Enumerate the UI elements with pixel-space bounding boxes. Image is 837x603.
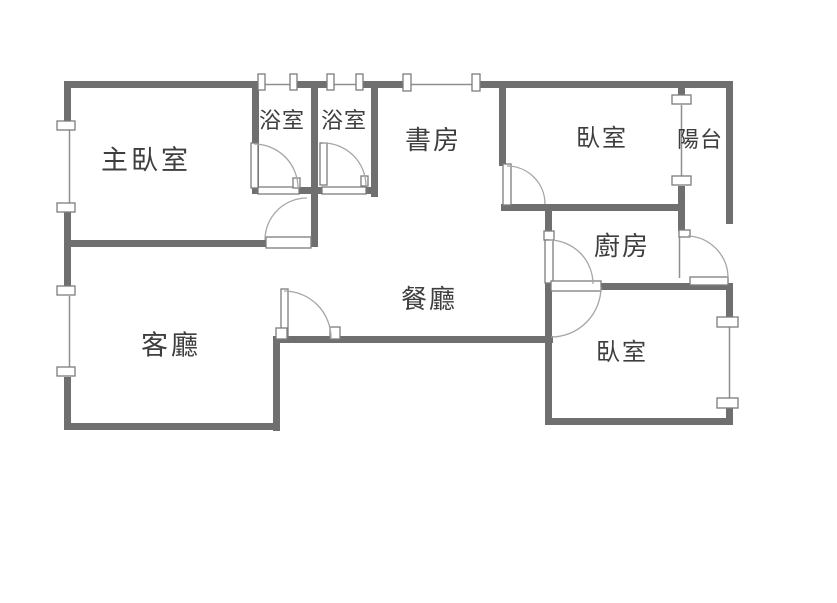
door-jamb: [276, 328, 287, 339]
room-label-bathroom-1: 浴室: [259, 111, 305, 133]
floorplan: 主臥室 浴室 浴室 書房 臥室 陽台 廚房 餐廳 客廳 臥室: [0, 0, 837, 603]
wall-segment: [499, 83, 506, 166]
door-swing-arc: [284, 291, 331, 338]
door-sill: [322, 187, 366, 194]
door-jamb: [544, 231, 554, 240]
wall-segment: [64, 423, 280, 430]
wall-segment: [273, 336, 280, 431]
window-tick: [717, 317, 738, 327]
door-swing-arc: [549, 240, 593, 284]
door-leaf: [690, 277, 728, 285]
room-label-study: 書房: [405, 128, 461, 154]
door-sill: [266, 237, 311, 248]
room-label-balcony: 陽台: [677, 130, 723, 152]
wall-segment: [726, 81, 733, 224]
window-tick: [403, 74, 411, 91]
door-swing-arc: [551, 287, 601, 337]
wall-segment: [726, 408, 733, 425]
door-leaf: [503, 164, 511, 205]
window-tick: [258, 74, 265, 90]
window-tick: [327, 74, 334, 90]
window-tick: [717, 398, 738, 408]
window-tick: [356, 74, 363, 90]
door-jamb: [293, 178, 300, 188]
wall-segment: [501, 204, 685, 211]
door-jamb: [361, 176, 368, 186]
window-tick: [672, 176, 691, 185]
doors: [251, 143, 728, 339]
window-tick: [57, 367, 75, 376]
door-swing-arc: [323, 143, 366, 186]
room-label-bedroom-bottom: 臥室: [596, 340, 648, 364]
wall-segment: [311, 83, 318, 247]
window-tick: [472, 74, 480, 91]
window-tick: [672, 95, 691, 104]
wall-segment: [545, 418, 733, 425]
wall-segment: [678, 186, 685, 231]
wall-segment: [64, 81, 71, 121]
door-swing-arc: [254, 144, 298, 188]
wall-segment: [545, 211, 552, 231]
room-label-bathroom-2: 浴室: [321, 111, 367, 133]
door-swing-arc: [688, 236, 728, 278]
window-tick: [57, 121, 75, 130]
wall-segment: [273, 336, 553, 343]
window-tick: [290, 74, 297, 90]
wall-segment: [64, 81, 258, 88]
door-leaf: [320, 143, 327, 185]
room-label-bedroom-top: 臥室: [576, 126, 628, 150]
room-label-dining-room: 餐廳: [401, 287, 457, 313]
wall-segment: [478, 81, 733, 88]
wall-segment: [371, 83, 378, 197]
wall-segment: [726, 283, 733, 317]
room-label-living-room: 客廳: [141, 333, 201, 360]
wall-segment: [64, 212, 71, 286]
door-swing-arc: [265, 198, 307, 240]
door-swing-arc: [507, 166, 545, 204]
room-label-master-bedroom: 主臥室: [101, 148, 191, 175]
room-label-kitchen: 廚房: [594, 234, 650, 260]
door-leaf: [545, 240, 553, 283]
wall-segment: [545, 290, 552, 425]
window-tick: [57, 203, 75, 212]
window-tick: [57, 286, 75, 295]
wall-segment: [363, 81, 403, 88]
door-leaf: [251, 143, 258, 188]
wall-segment: [64, 377, 71, 430]
